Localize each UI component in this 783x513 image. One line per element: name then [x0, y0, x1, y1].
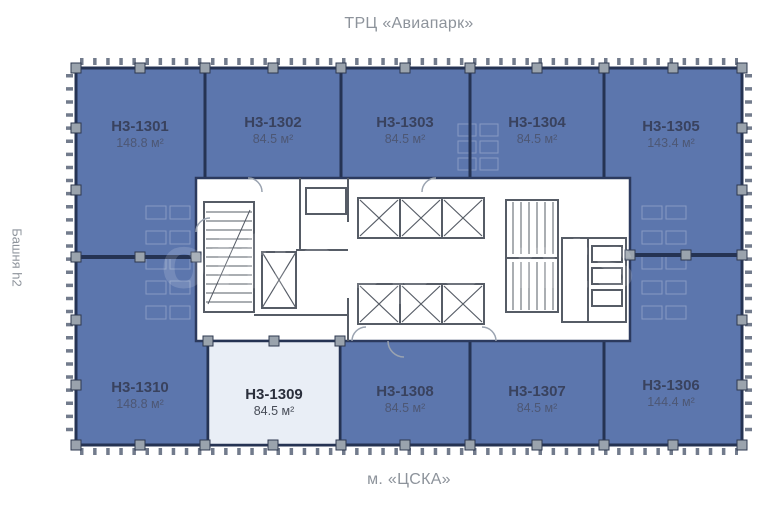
bottom-landmark-label: м. «ЦСКА» — [76, 471, 742, 489]
unit-id: H3-1301 — [111, 118, 169, 135]
unit-area: 84.5 м² — [517, 401, 558, 415]
unit-area: 84.5 м² — [517, 132, 558, 146]
unit-area: 84.5 м² — [385, 132, 426, 146]
unit-id: H3-1309 — [245, 386, 303, 403]
unit-area: 84.5 м² — [254, 404, 295, 418]
unit-area: 148.8 м² — [116, 136, 164, 150]
unit-area: 148.8 м² — [116, 397, 164, 411]
unit-H3-1305[interactable] — [604, 68, 742, 255]
unit-H3-1306[interactable] — [604, 255, 742, 445]
unit-id: H3-1306 — [642, 377, 700, 394]
unit-id: H3-1307 — [508, 383, 566, 400]
unit-id: H3-1302 — [244, 114, 302, 131]
floor-plan-canvas: officepoints H3-1301 148.8 м² H3-1302 84… — [0, 0, 783, 513]
watermark: officepoints — [161, 220, 640, 305]
unit-id: H3-1304 — [508, 114, 566, 131]
floor-plan-page: ТРЦ «Авиапарк» Башня h2 — [0, 0, 783, 513]
unit-id: H3-1303 — [376, 114, 434, 131]
unit-area: 84.5 м² — [253, 132, 294, 146]
unit-id: H3-1305 — [642, 118, 700, 135]
unit-id: H3-1308 — [376, 383, 434, 400]
unit-area: 144.4 м² — [647, 395, 695, 409]
unit-area: 84.5 м² — [385, 401, 426, 415]
unit-id: H3-1310 — [111, 379, 169, 396]
unit-H3-1301[interactable] — [76, 68, 205, 257]
unit-area: 143.4 м² — [647, 136, 695, 150]
unit-H3-1310[interactable] — [76, 257, 208, 445]
